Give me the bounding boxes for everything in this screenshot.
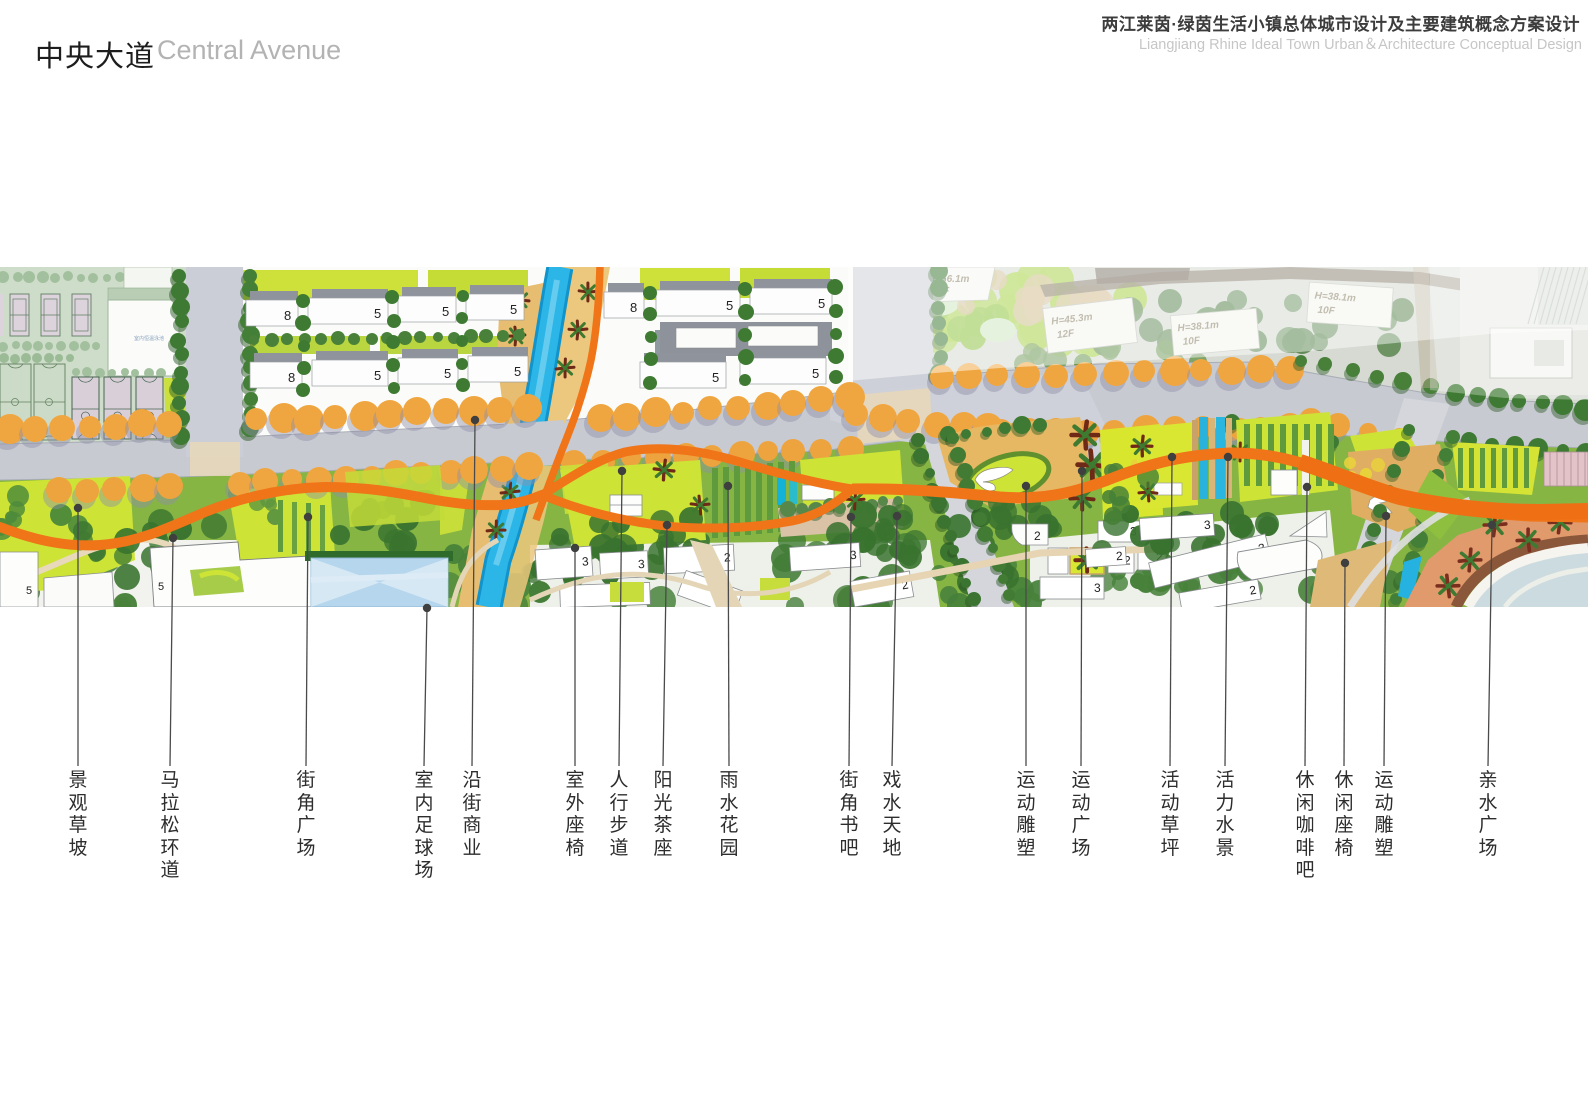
svg-text:5: 5 [444, 366, 451, 381]
svg-text:8: 8 [288, 370, 295, 385]
svg-text:5: 5 [26, 585, 32, 597]
svg-text:2: 2 [1115, 549, 1123, 563]
svg-text:5: 5 [374, 368, 381, 383]
svg-text:5: 5 [510, 302, 517, 317]
svg-text:8: 8 [284, 308, 291, 323]
svg-text:5: 5 [726, 298, 733, 313]
svg-text:2: 2 [724, 550, 732, 564]
svg-text:5: 5 [818, 296, 825, 311]
svg-text:3: 3 [1094, 581, 1101, 595]
svg-text:2: 2 [1034, 529, 1041, 543]
svg-text:3: 3 [638, 557, 646, 571]
svg-text:5: 5 [442, 304, 449, 319]
svg-text:3: 3 [1203, 518, 1211, 532]
svg-text:5: 5 [712, 370, 719, 385]
svg-text:5: 5 [374, 306, 381, 321]
svg-text:8: 8 [630, 300, 637, 315]
svg-text:5: 5 [812, 366, 819, 381]
svg-text:室内恒温泳池: 室内恒温泳池 [134, 335, 164, 342]
svg-text:5: 5 [514, 364, 521, 379]
svg-text:3: 3 [581, 554, 589, 568]
svg-text:5: 5 [158, 581, 164, 593]
